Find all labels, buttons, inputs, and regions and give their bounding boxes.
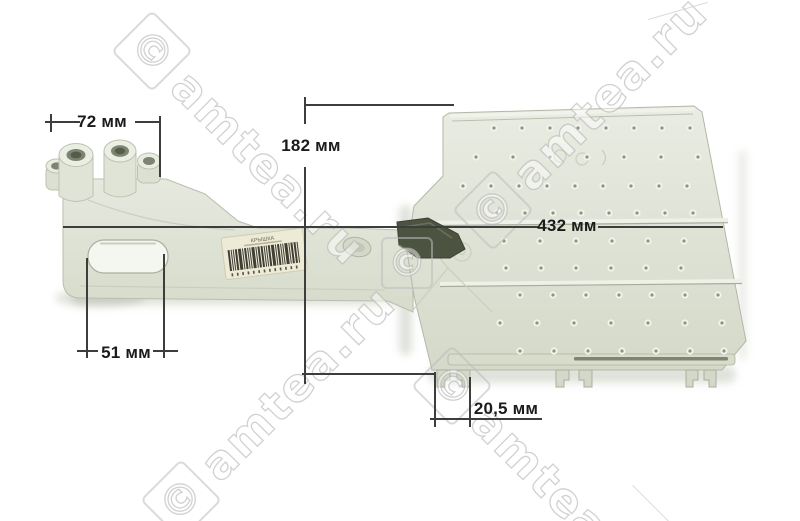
dim-51-vline-left [86, 258, 88, 358]
tube-large-right [104, 140, 136, 197]
part-photo: КРЫШКА [0, 0, 800, 521]
dim-51-label: 51 мм [98, 343, 154, 363]
dim-432-line-left [63, 226, 538, 228]
dim-432-label: 432 мм [535, 216, 599, 236]
dim-51-tick-left [77, 350, 98, 352]
product-photo-stage: КРЫШКА © amtea.ru © amtea.ru © amtea.ru … [0, 0, 800, 521]
dim-182-vline-upper [304, 97, 306, 124]
tube-large-left [59, 144, 93, 202]
rail-slit [574, 357, 728, 361]
dim-205-label: 20,5 мм [471, 399, 541, 419]
dim-72-line-right [135, 121, 161, 123]
dim-51-tick-right [153, 350, 178, 352]
dim-182-vline-lower [304, 167, 306, 384]
dim-182-line-top [304, 104, 454, 106]
dim-182-line-bottom [302, 373, 434, 375]
dim-51-vline-right [163, 254, 165, 358]
dim-72-tick-left [50, 114, 52, 132]
tube-small-right [138, 153, 161, 183]
dim-72-tick-right [159, 116, 161, 177]
dim-432-line-right [598, 226, 723, 228]
dim-72-label: 72 мм [70, 112, 134, 132]
dim-182-label: 182 мм [281, 136, 341, 156]
arm-slot-hole [88, 240, 168, 273]
